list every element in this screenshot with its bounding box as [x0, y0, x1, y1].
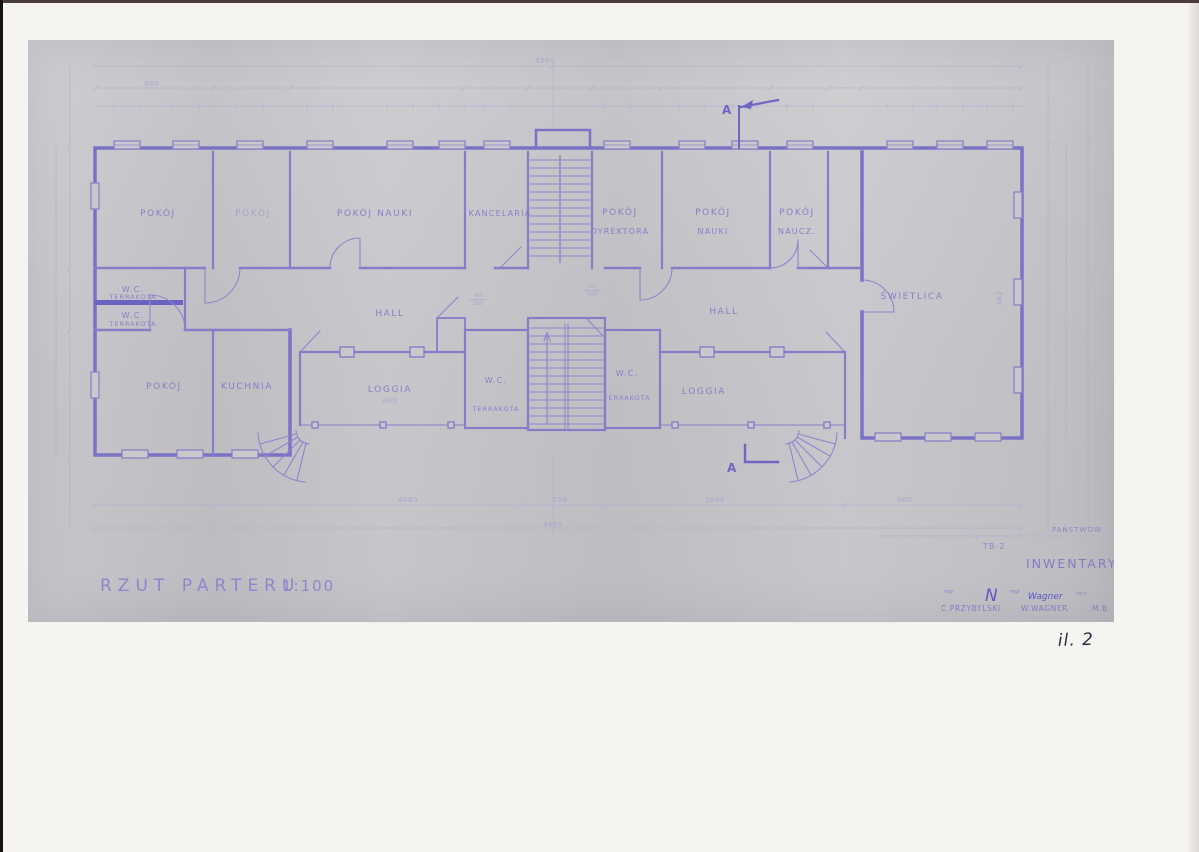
room-label-wc-c-finish: TERRAKOTA [471, 405, 519, 413]
room-label-hall-left: HALL [375, 309, 404, 319]
stamp-role-3: tech [1076, 591, 1087, 597]
figure-number-annotation: il. 2 [1057, 630, 1094, 651]
room-label-wc-b-finish: TERRAKOTA [108, 320, 156, 328]
curved-stair-right [786, 431, 837, 482]
room-label-kuchnia: KUCHNIA [221, 382, 273, 392]
section-marker-bottom [745, 445, 778, 462]
dim-door-h-1: 205 [587, 292, 598, 298]
dim-door-h-2: 205 [473, 301, 484, 307]
dim-door-w-2: 90 [475, 293, 482, 299]
dim-loggia-width: 800 [383, 397, 398, 405]
room-label-pokoj-nauki-b2: NAUKI [698, 227, 729, 236]
room-label-loggia-right: LOGGIA [682, 387, 726, 397]
room-label-pokoj-nauki-a: POKÓJ NAUKI [337, 207, 413, 219]
dimension-lines [56, 62, 1113, 539]
dim-top-total: 4560 [535, 57, 555, 65]
stamp-heading: INWENTARYZAC [1026, 556, 1149, 571]
stamp-hand-note: Wagner [1028, 592, 1064, 602]
room-label-pokoj-nauki-b1: POKÓJ [695, 206, 731, 218]
door-swings [150, 238, 894, 352]
entrance-stair-north [530, 156, 590, 262]
dim-seg-680: 680 [145, 80, 160, 88]
stamp-sheet-no: TB-2 [982, 542, 1005, 551]
drawing-scale: 1:100 [282, 577, 335, 595]
dim-bottom-2: 756 [553, 496, 568, 504]
room-label-wc-c: W.C. [485, 376, 507, 385]
scanned-page: POKÓJ POKÓJ POKÓJ NAUKI KANCELARIA POKÓJ… [0, 0, 1199, 852]
room-label-hall-right: HALL [709, 307, 738, 317]
stamp-office: PAŃSTWOW [1052, 525, 1102, 534]
room-label-pokoj-dyrektora-2: DYREKTORA [591, 227, 650, 236]
room-label-pokoj-dyrektora-1: POKÓJ [602, 206, 638, 218]
room-label-wc-d: W.C. [616, 369, 638, 378]
room-label-pokoj-3: POKÓJ [146, 380, 182, 392]
dim-door-w-1: 90 [589, 284, 596, 290]
dim-bottom-3: 1088 [705, 496, 725, 504]
scan-edge-right [1187, 0, 1199, 852]
dim-right-interior: 462 [996, 291, 1004, 306]
floor-plan-drawing: POKÓJ POKÓJ POKÓJ NAUKI KANCELARIA POKÓJ… [0, 0, 1199, 852]
room-label-wc-b: W.C. [122, 311, 144, 320]
section-letter-top: A [722, 103, 732, 117]
scan-edge-top [0, 0, 1199, 3]
stamp-role-1: mgr [944, 589, 955, 595]
scan-edge-left [0, 0, 3, 852]
stamp-monogram: N [985, 586, 998, 606]
room-label-wc-d-finish: TERRAKOTA [602, 394, 650, 402]
room-label-loggia-left: LOGGIA [368, 385, 412, 395]
stamp-name-2: W.WAGNER [1021, 604, 1068, 613]
room-label-kancelaria: KANCELARIA [469, 209, 532, 218]
door-fraction-bars [470, 291, 600, 300]
room-label-pokoj-1: POKÓJ [140, 207, 176, 219]
stamp-role-2: mgr [1010, 589, 1021, 595]
room-label-swietlica: ŚWIETLICA [881, 290, 944, 302]
room-label-pokoj-2: POKÓJ [235, 207, 271, 219]
section-letter-bottom: A [727, 461, 737, 475]
room-label-pokoj-naucz-2: NAUCZ. [778, 227, 816, 236]
main-stair-central [530, 324, 603, 428]
drawing-title: RZUT PARTERU [100, 576, 300, 596]
dim-bottom-4: 800 [898, 496, 913, 504]
dim-bottom-1: 4080 [398, 496, 418, 504]
dim-bottom-total: 4450 [543, 521, 563, 529]
stamp-name-3: M.B [1092, 604, 1108, 613]
room-label-pokoj-naucz-1: POKÓJ [779, 206, 815, 218]
stamp-name-1: C.PRZYBYLSKI [941, 604, 1001, 613]
room-label-wc-a-finish: TERRAKOTA [108, 293, 156, 301]
